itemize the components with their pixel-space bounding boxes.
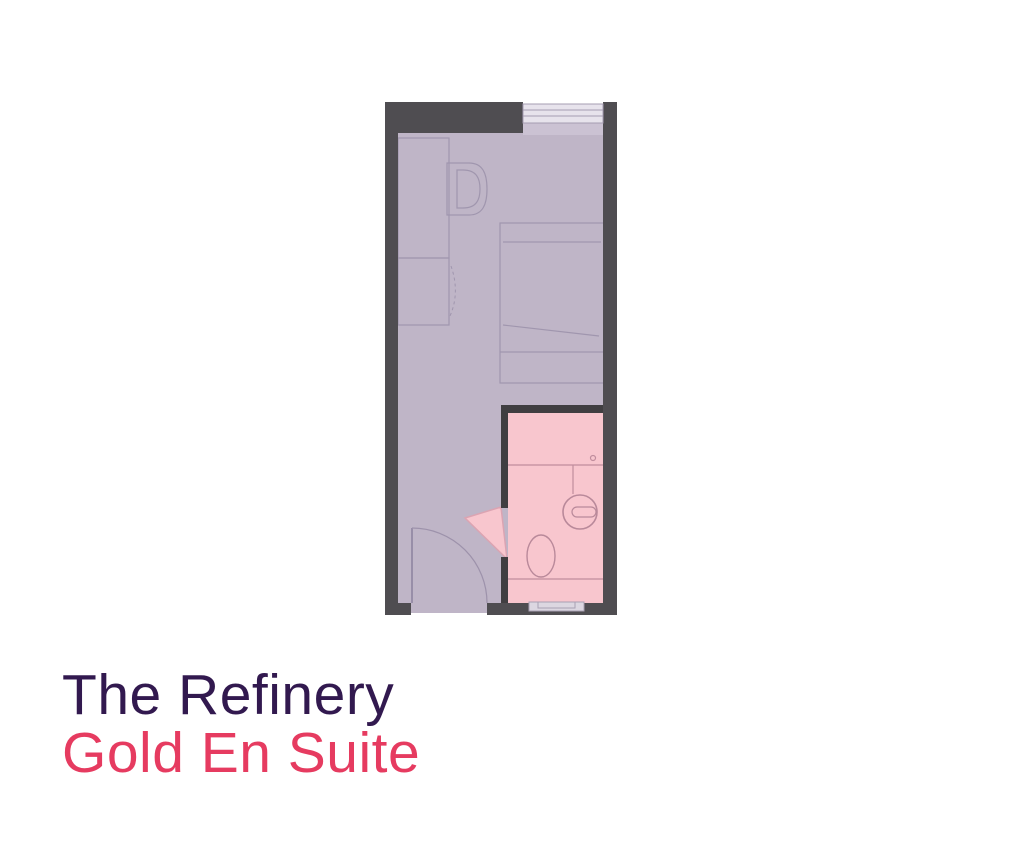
wall-recess xyxy=(529,602,584,611)
caption: The Refinery Gold En Suite xyxy=(62,666,420,782)
entrance-threshold xyxy=(411,603,487,613)
window-sill xyxy=(523,122,603,135)
sink-tap-icon xyxy=(572,507,596,517)
building-name: The Refinery xyxy=(62,666,420,724)
window xyxy=(523,104,603,123)
toilet xyxy=(527,535,555,577)
room-type: Gold En Suite xyxy=(62,724,420,782)
page: The Refinery Gold En Suite xyxy=(0,0,1033,850)
